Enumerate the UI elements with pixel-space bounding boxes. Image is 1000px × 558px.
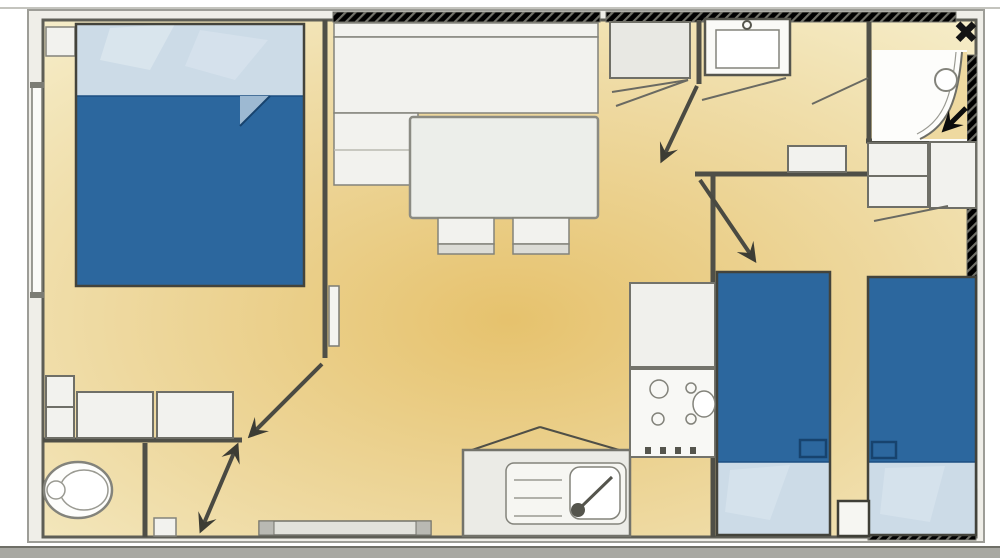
bottom-bar xyxy=(0,546,1000,558)
shelf-bedroom2 xyxy=(788,146,846,172)
double-bed xyxy=(76,24,304,286)
sliding-door-bottom xyxy=(259,521,431,535)
sink-unit xyxy=(463,450,630,536)
radiator-left-wall xyxy=(30,82,44,298)
toilet xyxy=(44,462,112,518)
shower-room xyxy=(872,50,967,141)
hob-side-bowl xyxy=(693,391,715,417)
radiator-bedroom1 xyxy=(329,286,339,346)
single-bed-1-blanket xyxy=(717,272,830,462)
sofa-seat xyxy=(334,37,598,113)
mobile-home-floorplan xyxy=(0,0,1000,558)
double-bed-blanket xyxy=(76,96,304,286)
single-bed-2 xyxy=(868,277,976,535)
door-stop-block xyxy=(154,518,176,536)
hall-cabinet xyxy=(610,22,690,78)
single-bed-1 xyxy=(717,272,830,535)
window-top-living xyxy=(333,12,600,22)
kitchen-counter xyxy=(630,283,715,367)
close-icon[interactable]: ✖ xyxy=(945,14,987,52)
nightstand-left xyxy=(46,27,75,56)
shower-drain xyxy=(935,69,957,91)
chair-1 xyxy=(438,218,494,254)
nightstand-between-beds xyxy=(838,501,869,536)
floorplan-viewer: ✖ xyxy=(0,0,1000,558)
single-bed-2-blanket xyxy=(868,277,976,462)
dining-table xyxy=(410,117,598,218)
sofa-backrest xyxy=(334,23,598,37)
washbasin xyxy=(705,19,790,75)
chair-2 xyxy=(513,218,569,254)
hob-unit xyxy=(630,369,715,457)
sofa-chaise xyxy=(334,113,418,185)
